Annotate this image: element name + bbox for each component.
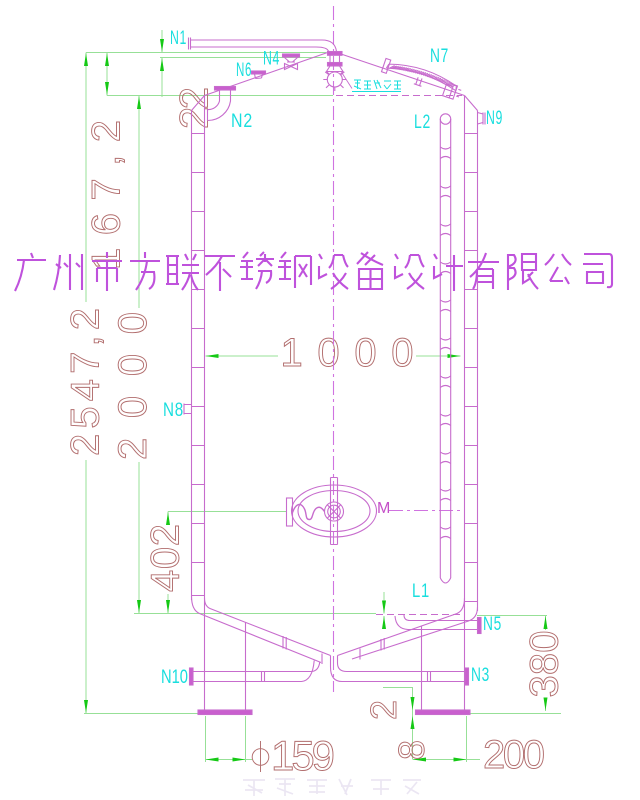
svg-text:1000: 1000 (281, 331, 414, 375)
svg-text:2547,2: 2547,2 (64, 308, 108, 456)
svg-text:L1: L1 (412, 580, 430, 602)
svg-text:N4: N4 (263, 48, 280, 70)
svg-text:159: 159 (271, 732, 335, 779)
svg-text:167,2: 167,2 (85, 120, 129, 270)
svg-text:2: 2 (363, 700, 404, 720)
svg-text:N2: N2 (231, 110, 253, 132)
svg-text:N1: N1 (170, 27, 187, 49)
svg-text:380: 380 (523, 631, 567, 698)
svg-text:N6: N6 (236, 59, 252, 81)
svg-text:N8: N8 (163, 399, 184, 421)
svg-text:N7: N7 (430, 45, 449, 67)
svg-text:L2: L2 (414, 111, 431, 133)
svg-text:200: 200 (483, 733, 545, 777)
svg-text:402: 402 (144, 524, 188, 592)
svg-text:N9: N9 (486, 107, 503, 129)
svg-text:M: M (377, 500, 390, 517)
svg-text:2000: 2000 (111, 312, 155, 460)
svg-text:N5: N5 (483, 613, 502, 635)
svg-text:8: 8 (391, 740, 432, 760)
svg-text:N10: N10 (161, 666, 188, 688)
svg-text:N3: N3 (471, 664, 490, 686)
